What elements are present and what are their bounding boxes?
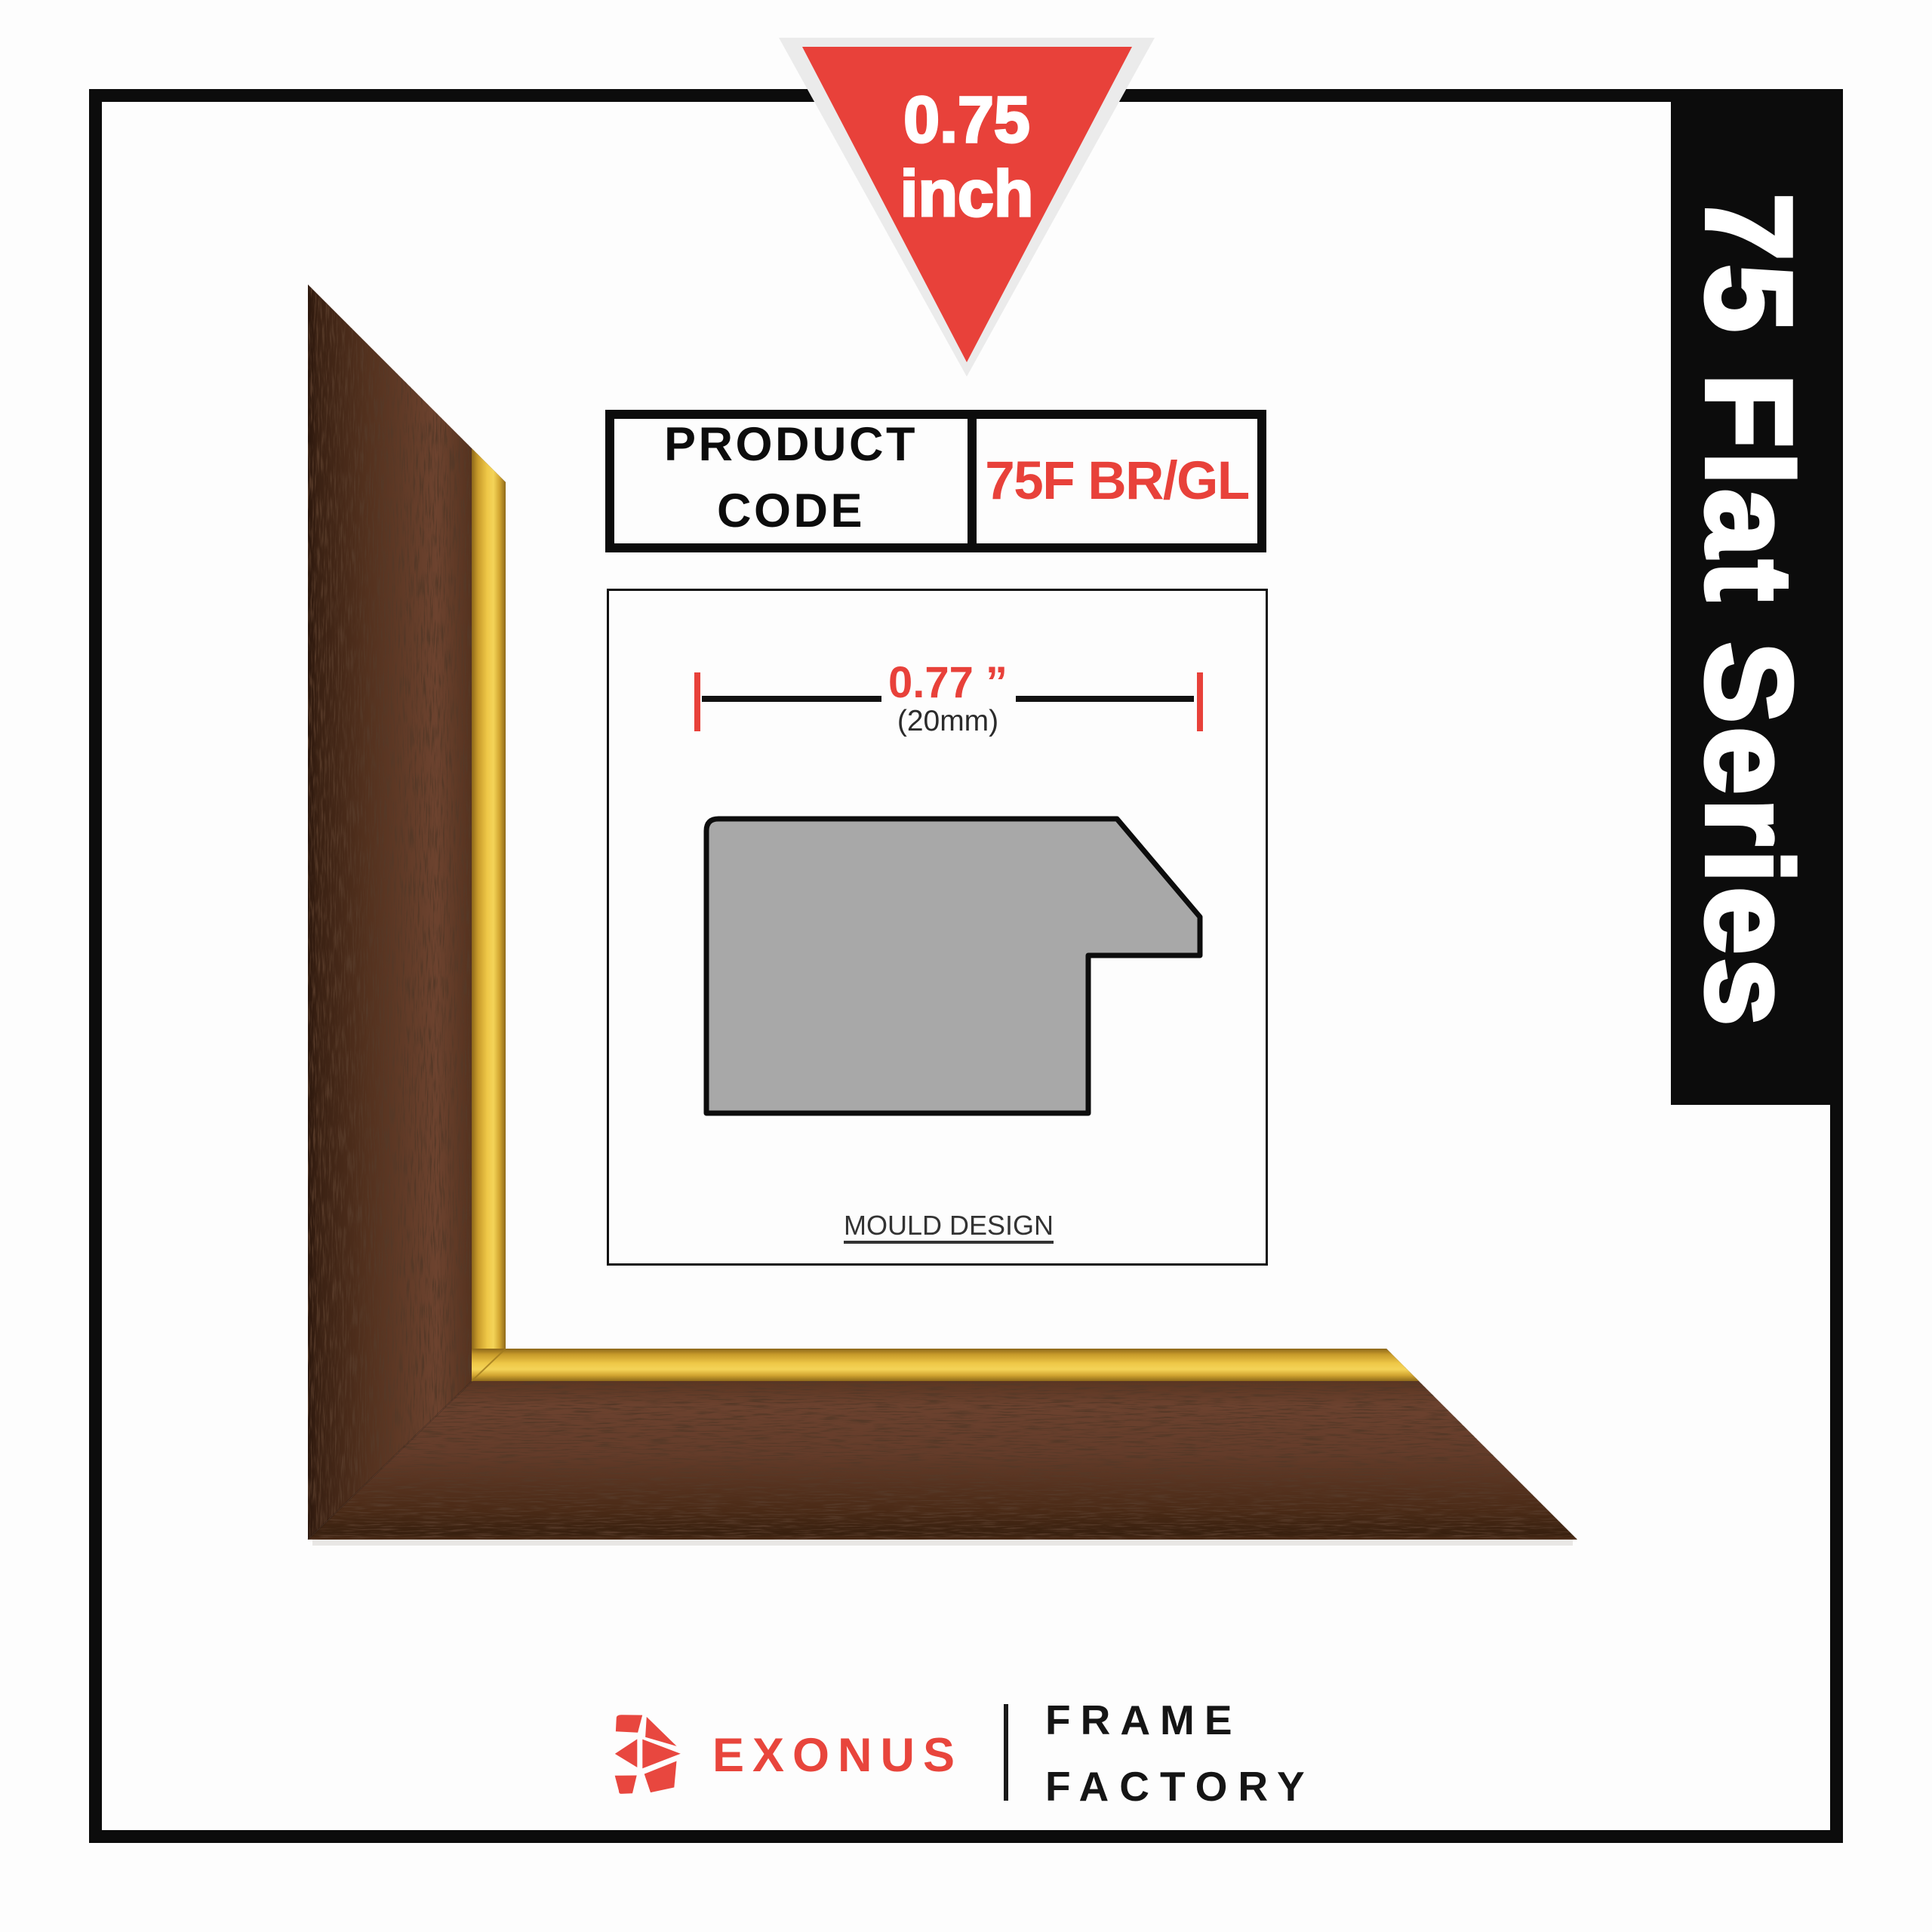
svg-text:FACTORY: FACTORY bbox=[1045, 1763, 1315, 1810]
svg-text:0.77 ”: 0.77 ” bbox=[888, 658, 1008, 707]
svg-text:FRAME: FRAME bbox=[1045, 1697, 1242, 1743]
svg-text:MOULD DESIGN: MOULD DESIGN bbox=[844, 1210, 1054, 1241]
svg-text:0.75: 0.75 bbox=[903, 84, 1029, 156]
svg-text:EXONUS: EXONUS bbox=[712, 1729, 963, 1782]
svg-text:75 Flat Series: 75 Flat Series bbox=[1681, 193, 1817, 1029]
svg-text:inch: inch bbox=[900, 158, 1034, 230]
svg-text:(20mm): (20mm) bbox=[897, 705, 998, 737]
